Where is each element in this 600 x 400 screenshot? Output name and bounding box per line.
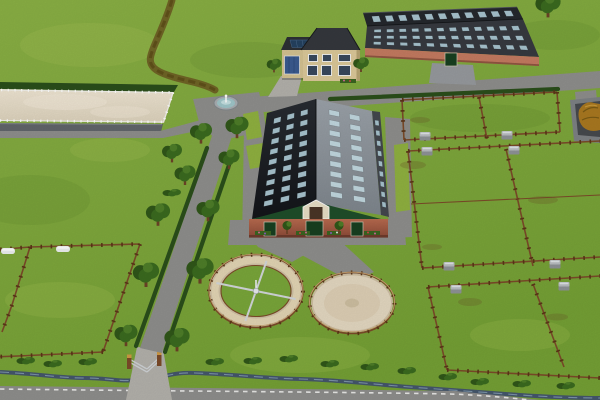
texture-overlay bbox=[0, 0, 600, 400]
game-viewport bbox=[0, 0, 600, 400]
